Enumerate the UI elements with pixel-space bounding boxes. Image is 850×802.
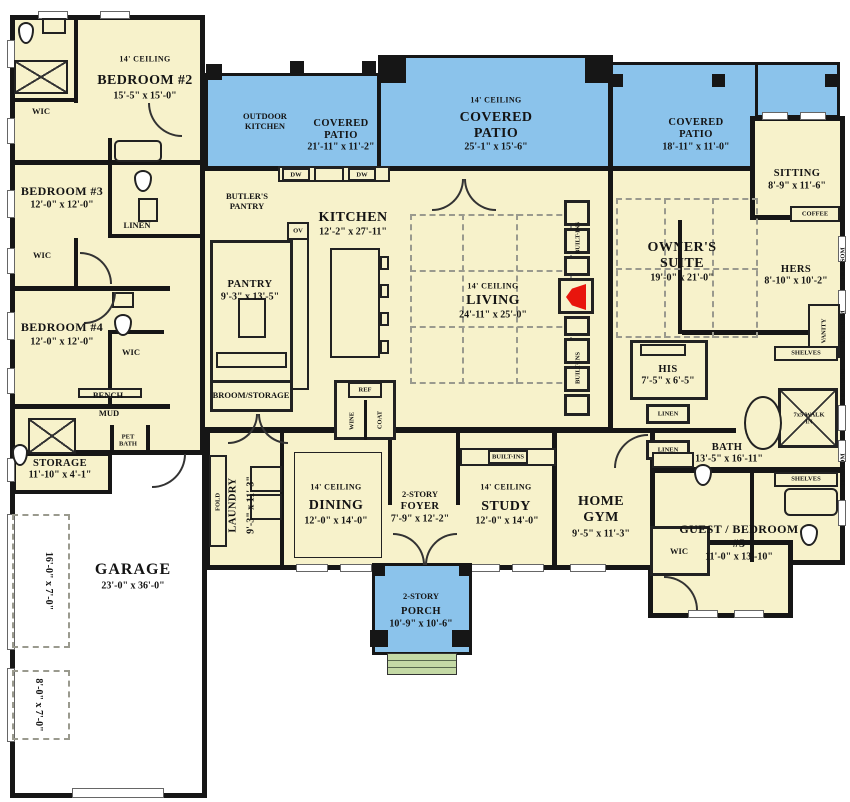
parking2-dims: 8'-0" x 7'-0": [32, 678, 44, 731]
patio-column: [378, 55, 406, 83]
ceiling-grid-line: [410, 270, 572, 272]
vanity-label: VANITY: [820, 319, 827, 344]
wine-label: WINE: [348, 412, 355, 430]
patio-column: [290, 61, 304, 75]
bath-dims: 13'-5" x 16'-11": [695, 453, 763, 465]
wall: [388, 430, 392, 505]
window: [688, 610, 718, 618]
window: [296, 564, 328, 572]
wall: [110, 425, 114, 453]
built-ins-label: BUILT-INS: [574, 222, 581, 254]
bench-label: BENCH: [93, 391, 123, 401]
pantry-dims: 9'-3" x 13'-5": [221, 291, 279, 303]
patio-right-dims: 18'-11" x 11'-0": [662, 141, 729, 153]
window: [838, 405, 846, 431]
living-label: LIVING: [466, 293, 520, 309]
window: [762, 112, 788, 120]
bedroom3-dims: 12'-0" x 12'-0": [30, 199, 93, 211]
coat-label: COAT: [376, 411, 383, 429]
garage-door: [72, 788, 164, 798]
bedroom4-label: BEDROOM #4: [21, 321, 103, 335]
wall: [10, 286, 170, 291]
coffee-label: COFFEE: [802, 210, 828, 217]
sitting-dims: 8'-9" x 11'-6": [768, 180, 826, 192]
porch-label: PORCH: [401, 606, 441, 618]
pet-bath-label: PET BATH: [116, 434, 140, 449]
patio-left-label: COVERED PATIO: [305, 118, 377, 142]
window: [800, 112, 826, 120]
guest-bedroom5-dims: 11'-0" x 13'-10": [705, 551, 773, 563]
owners-suite-dims: 19'-0" x 21'-0": [650, 272, 713, 284]
window: [468, 564, 500, 572]
wall: [10, 98, 78, 102]
window: [570, 564, 606, 572]
transom-label: TRANSOM: [839, 247, 846, 280]
sink-icon: [652, 452, 694, 468]
bathtub-icon: [744, 396, 782, 450]
mud-label: MUD: [99, 409, 119, 419]
window: [340, 564, 372, 572]
patio-column: [825, 74, 838, 87]
sitting-label: SITTING: [774, 168, 821, 180]
home-gym-dims: 9'-5" x 11'-3": [572, 528, 630, 540]
owners-suite-label: OWNER'S SUITE: [636, 240, 728, 272]
window: [838, 500, 846, 526]
garage-label: GARAGE: [95, 561, 171, 579]
closet-shelf: [640, 344, 686, 356]
transom-label: TRANSOM: [839, 310, 846, 343]
fold-label: FOLD: [214, 493, 221, 511]
linen-label: LINEN: [124, 221, 151, 231]
patio-column: [712, 74, 725, 87]
window: [734, 610, 764, 618]
wall: [74, 15, 78, 103]
study-ceiling-label: 14' CEILING: [480, 482, 531, 491]
wall: [108, 138, 112, 238]
linen-label: LINEN: [658, 446, 679, 453]
window: [7, 248, 15, 274]
patio-column: [585, 55, 613, 83]
linen-label: LINEN: [658, 410, 679, 417]
oven-label: OV: [293, 227, 303, 234]
kitchen-island: [330, 248, 380, 358]
dw-label: DW: [290, 171, 301, 178]
window: [7, 368, 15, 394]
storage-label: STORAGE: [33, 458, 87, 470]
window: [7, 118, 15, 144]
pantry-shelf: [216, 352, 287, 368]
patio-left-dims: 21'-11" x 11'-2": [307, 141, 374, 153]
bath-label: BATH: [712, 442, 743, 454]
guest-bedroom5-label: GUEST / BEDROOM #5: [679, 523, 799, 551]
his-label: HIS: [658, 364, 677, 376]
cabinet: [138, 198, 158, 222]
dining-label: DINING: [309, 498, 364, 514]
shower-icon: [14, 60, 68, 94]
wic-label: WIC: [33, 251, 51, 261]
bedroom2-label: BEDROOM #2: [97, 73, 192, 89]
kitchen-label: KITCHEN: [319, 210, 388, 226]
floor-plan: 14' CEILING BEDROOM #2 15'-5" x 15'-0" W…: [0, 0, 850, 802]
stool-icon: [380, 312, 389, 326]
hers-dims: 8'-10" x 10'-2": [764, 275, 827, 287]
wall: [364, 400, 367, 440]
window: [7, 312, 15, 340]
shelves-label: SHELVES: [791, 475, 820, 482]
living-dims: 24'-11" x 25'-0": [459, 309, 527, 321]
kitchen-sink: [314, 167, 344, 182]
porch-pillar: [370, 630, 388, 647]
bedroom4-dims: 12'-0" x 12'-0": [30, 336, 93, 348]
stool-icon: [380, 284, 389, 298]
built-in-cabinet: [564, 316, 590, 336]
wall: [108, 234, 205, 238]
garage-dims: 23'-0" x 36'-0": [101, 580, 164, 592]
bathtub-icon: [114, 140, 162, 162]
porch-pillar: [372, 563, 385, 576]
bedroom2-dims: 15'-5" x 15'-0": [113, 90, 176, 102]
built-ins-label: BUILT-INS: [492, 453, 524, 460]
built-in-cabinet: [564, 256, 590, 276]
transom-label: TRANSOM: [839, 453, 846, 486]
dw-label: DW: [356, 171, 367, 178]
porch-steps: [387, 653, 457, 675]
patio-center-ceiling-label: 14' CEILING: [470, 95, 521, 104]
laundry-dims: 9'-3" x 11'-3": [246, 476, 257, 534]
bathtub-icon: [784, 488, 838, 516]
parking-area: [12, 514, 70, 648]
outdoor-kitchen-label: OUTDOOR KITCHEN: [233, 112, 297, 132]
patio-column: [362, 61, 376, 75]
living-ceiling-label: 14' CEILING: [467, 281, 518, 290]
window: [7, 190, 15, 218]
wall: [456, 430, 460, 505]
patio-column: [610, 74, 623, 87]
window: [512, 564, 544, 572]
ref-label: REF: [359, 386, 372, 393]
built-ins-label: BUILT-INS: [574, 352, 581, 384]
dining-ceiling-label: 14' CEILING: [310, 482, 361, 491]
hers-label: HERS: [781, 264, 811, 276]
stool-icon: [380, 256, 389, 270]
built-in-cabinet: [564, 394, 590, 416]
ceiling-grid-line: [462, 214, 464, 384]
shower-icon: [28, 418, 76, 454]
patio-center-dims: 25'-1" x 15'-6": [464, 141, 527, 153]
laundry-label: LAUNDRY 9'-3" x 11'-3": [223, 476, 260, 534]
pantry-label: PANTRY: [228, 279, 273, 291]
wall: [608, 428, 736, 433]
study-dims: 12'-0" x 14'-0": [475, 515, 538, 527]
foyer-story-label: 2-STORY: [402, 490, 438, 500]
porch-pillar: [459, 563, 472, 576]
bedroom2-ceiling-label: 14' CEILING: [119, 54, 170, 63]
wic-label: WIC: [122, 348, 140, 358]
patio-column: [206, 64, 222, 80]
laundry-name: LAUNDRY: [228, 478, 239, 533]
transom-label: TRANSOM: [839, 368, 846, 401]
pantry-island: [238, 298, 266, 338]
dining-dims: 12'-0" x 14'-0": [304, 515, 367, 527]
wic-label: WIC: [32, 107, 50, 117]
wall: [146, 425, 150, 453]
study-label: STUDY: [481, 499, 530, 515]
porch-story-label: 2-STORY: [403, 592, 439, 602]
wic-label: WIC: [670, 547, 688, 557]
bedroom3-label: BEDROOM #3: [21, 185, 103, 199]
patio-center-label: COVERED PATIO: [446, 110, 546, 142]
broom-storage-label: BROOM/STORAGE: [213, 391, 290, 401]
storage-dims: 11'-10" x 4'-1": [29, 469, 92, 481]
shelves-label: SHELVES: [791, 349, 820, 356]
parking1-dims: 16'-0" x 7'-0": [42, 552, 54, 610]
kitchen-dims: 12'-2" x 27'-11": [319, 226, 387, 238]
butlers-pantry-label: BUTLER'S PANTRY: [217, 192, 277, 212]
sink-icon: [42, 18, 66, 34]
his-dims: 7'-5" x 6'-5": [641, 375, 694, 387]
porch-dims: 10'-9" x 10'-6": [389, 618, 452, 630]
stool-icon: [380, 340, 389, 354]
wall: [74, 238, 78, 290]
window: [100, 11, 130, 19]
foyer-dims: 7'-9" x 12'-2": [391, 513, 449, 525]
walk-in-label: 7x5 WALK IN: [792, 412, 826, 427]
ceiling-grid-line: [410, 326, 572, 328]
porch-pillar: [452, 630, 470, 647]
foyer-label: FOYER: [401, 501, 440, 513]
wall: [10, 404, 170, 409]
patio-right-label: COVERED PATIO: [660, 117, 732, 141]
home-gym-label: HOME GYM: [571, 494, 631, 526]
